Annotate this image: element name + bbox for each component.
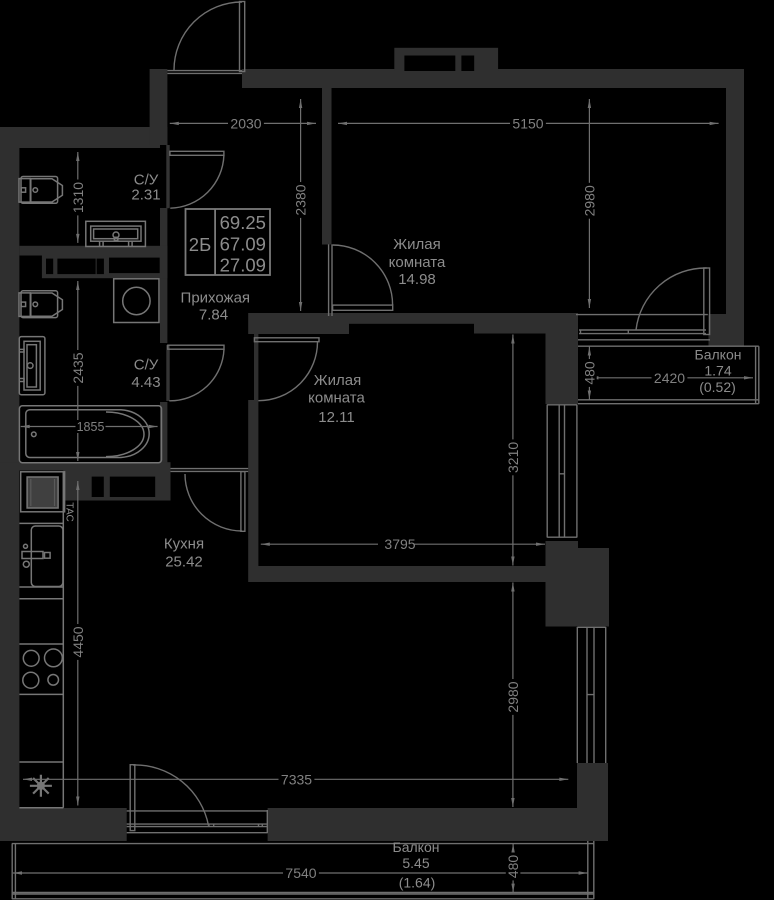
svg-text:2420: 2420 [654, 370, 685, 386]
svg-text:1310: 1310 [70, 182, 86, 213]
svg-text:4.43: 4.43 [131, 374, 160, 391]
svg-text:С/У: С/У [134, 357, 159, 374]
svg-text:ТАС: ТАС [64, 502, 75, 521]
svg-text:2030: 2030 [230, 115, 261, 131]
svg-text:(1.64): (1.64) [399, 875, 436, 891]
svg-text:2980: 2980 [581, 185, 597, 216]
svg-text:4450: 4450 [70, 626, 86, 657]
svg-text:14.98: 14.98 [398, 271, 436, 288]
svg-text:(0.52): (0.52) [699, 379, 736, 395]
svg-text:67.09: 67.09 [220, 234, 266, 255]
svg-text:Жилая: Жилая [393, 236, 440, 253]
svg-text:1855: 1855 [77, 420, 105, 434]
svg-text:Прихожая: Прихожая [181, 290, 251, 307]
svg-text:480: 480 [505, 855, 521, 879]
svg-text:5.45: 5.45 [402, 855, 429, 871]
svg-text:1.74: 1.74 [704, 363, 731, 379]
svg-text:Балкон: Балкон [695, 347, 742, 363]
svg-text:Кухня: Кухня [164, 536, 204, 553]
svg-text:3795: 3795 [384, 536, 415, 552]
svg-text:2Б: 2Б [189, 234, 211, 255]
svg-text:27.09: 27.09 [220, 255, 266, 276]
svg-text:2380: 2380 [293, 184, 309, 215]
svg-text:7.84: 7.84 [199, 307, 228, 324]
svg-text:2435: 2435 [70, 352, 86, 383]
svg-text:2.31: 2.31 [131, 187, 160, 204]
svg-text:3210: 3210 [505, 442, 521, 473]
svg-text:Жилая: Жилая [314, 372, 361, 389]
svg-text:12.11: 12.11 [318, 409, 354, 426]
svg-text:25.42: 25.42 [165, 554, 203, 571]
svg-text:7540: 7540 [285, 865, 316, 881]
svg-text:69.25: 69.25 [220, 212, 266, 233]
svg-text:Балкон: Балкон [393, 839, 440, 855]
svg-text:7335: 7335 [281, 771, 312, 787]
svg-text:480: 480 [581, 361, 597, 385]
svg-text:комната: комната [389, 254, 446, 271]
svg-text:2980: 2980 [505, 681, 521, 712]
svg-text:комната: комната [308, 390, 365, 407]
svg-text:5150: 5150 [512, 115, 543, 131]
